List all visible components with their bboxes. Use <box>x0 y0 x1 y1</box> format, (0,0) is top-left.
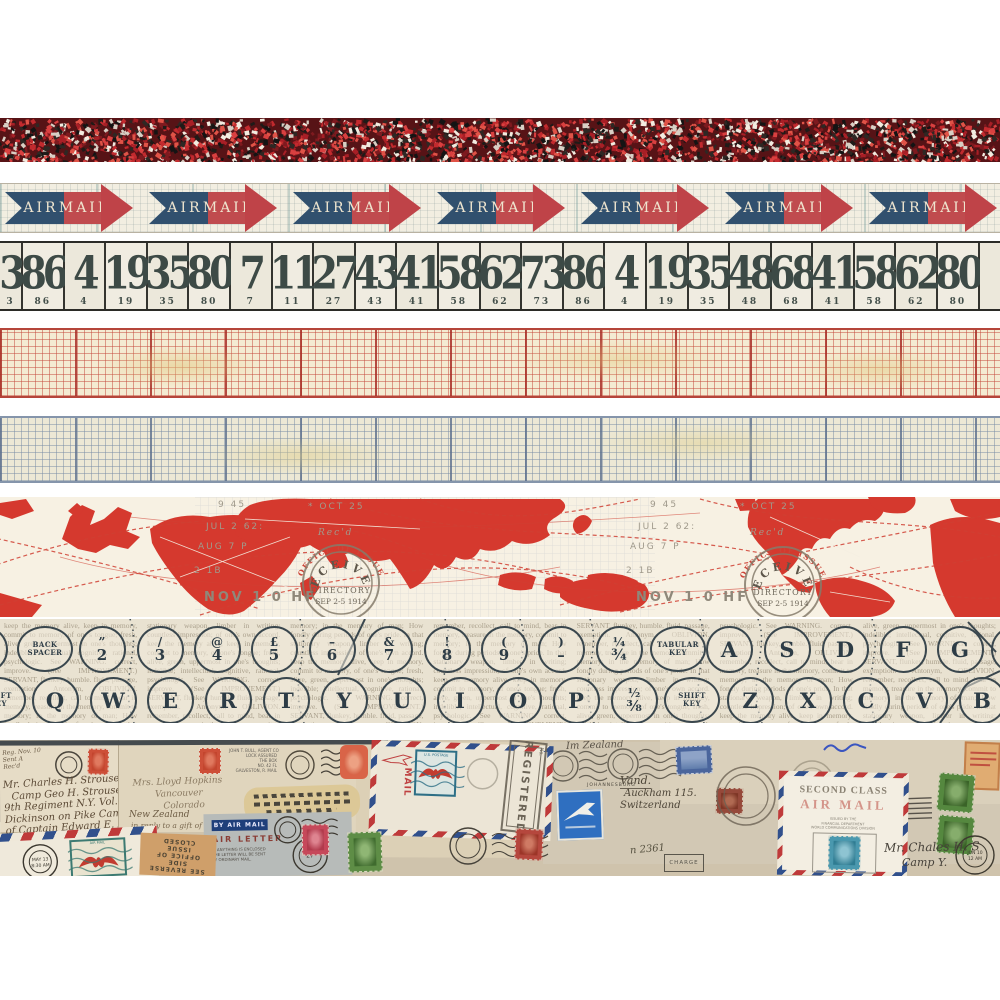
postmark-text: JUL 2 62: <box>637 522 696 532</box>
glitter-tape-strip <box>0 118 1000 162</box>
ticket-number-large: 62 <box>478 246 523 299</box>
envelope-left: Reg. Nov. 10Sent ARec'd Mr. Charles H. S… <box>0 741 122 834</box>
ticket-number-large: 86 <box>20 246 65 299</box>
ticket-number-large: 73 <box>519 246 564 299</box>
ticket-number-cell: 1111 <box>273 243 315 309</box>
typewriter-key-back: BACKSPACER <box>17 626 73 672</box>
ticket-number-cell: 5858 <box>439 243 481 309</box>
typewriter-key-Z: Z <box>727 677 774 724</box>
teal-cancel-waves <box>410 755 465 797</box>
ticket-number-small: 19 <box>647 297 687 307</box>
typewriter-key-–: )– <box>538 626 585 673</box>
typewriter-key-P: P <box>553 677 600 724</box>
ticket-number-small: 3 <box>0 297 21 307</box>
airmail-envelope-corner: MAY 13 8:30 AM AIR MAIL <box>0 826 159 876</box>
red-overprint-line <box>970 758 996 761</box>
postmark-text: Rec'd <box>317 528 353 538</box>
registered-stamp-box: REGISTERED No. <box>500 740 547 835</box>
handwritten-newzealand: New Zealand <box>129 810 190 820</box>
postmark-text: JUL 2 62: <box>205 522 264 532</box>
typewriter-key-E: E <box>147 677 194 724</box>
ticket-number-small: 4 <box>605 297 645 307</box>
ticket-number-cell: 2727 <box>314 243 356 309</box>
ticket-number-small: 80 <box>938 297 978 307</box>
ticket-number-cell: 3535 <box>148 243 190 309</box>
ticket-number-large: 41 <box>395 246 440 299</box>
band-part: MAIL <box>64 192 102 224</box>
ticket-number-cell: 4343 <box>356 243 398 309</box>
world-map-tape-strip: 9 45* OCT 25JUL 2 62:AUG 7 PRec'd2 1BNOV… <box>0 497 1000 617</box>
typewriter-key-I: I <box>437 677 484 724</box>
ticket-number-large: 62 <box>894 246 939 299</box>
ticket-number-large: 27 <box>312 246 357 299</box>
typewriter-key-F: F <box>880 626 927 673</box>
typewriter-key-Y: Y <box>321 677 368 724</box>
ticket-number-cell: 7373 <box>522 243 564 309</box>
svg-text:DIRECTORY: DIRECTORY <box>311 586 371 595</box>
red-graph-tape-strip <box>0 328 1000 398</box>
ticket-number-small: 7 <box>231 297 271 307</box>
small-print: ISSUED BY THE FINANCIAL DEPARTMENT WORLD… <box>783 816 903 832</box>
band-part: MAIL <box>784 192 822 224</box>
by-air-mail-label: BY AIR MAIL <box>212 819 268 831</box>
ticket-number-large: 58 <box>852 246 897 299</box>
blue-graph-tape-strip <box>0 416 1000 483</box>
svg-text:SEP 2-5 1914: SEP 2-5 1914 <box>315 597 367 606</box>
typewriter-key-Q: Q <box>32 677 79 724</box>
typewriter-key-2: ”2 <box>79 626 126 673</box>
air-mail-arrow: AIRMAIL <box>293 184 421 232</box>
typewriter-key-¾: ¼¾ <box>596 626 643 673</box>
typed-corner-block: JOHN T. BULL, AGENT COLOCK ASSURED THE B… <box>229 748 277 773</box>
air-letter-envelope: BY AIR MAIL AIR LETTER IF ANYTHING IS EN… <box>203 812 352 876</box>
air-mail-arrow: AIRMAIL <box>5 184 133 232</box>
ticket-number-large: 35 <box>145 246 190 299</box>
svg-text:8:30 AM: 8:30 AM <box>31 862 50 869</box>
typewriter-key-V: V <box>901 677 948 724</box>
blue-scene-stamp <box>675 745 712 775</box>
postmark-text: AUG 7 P <box>198 542 249 552</box>
air-mail-arrow: AIRMAIL <box>437 184 565 232</box>
ticket-number-cell: 44 <box>605 243 647 309</box>
air-letter-notes: IF ANYTHING IS ENCLOSED THE LETTER WILL … <box>212 846 266 862</box>
keys-layer: BACKSPACER”2/3@4£5–6&7!8(9)–¼¾TABULARKEY… <box>0 619 1000 723</box>
typewriter-key-R: R <box>205 677 252 724</box>
band-part: MAIL <box>640 192 678 224</box>
stamp-oval <box>344 749 364 775</box>
ticket-number-large: 11 <box>270 246 315 299</box>
postmark-ring-2 <box>282 748 318 784</box>
typewriter-key-S: S <box>764 626 811 673</box>
ticket-number-large: 19 <box>104 246 149 299</box>
ticket-number-cell: 4141 <box>397 243 439 309</box>
large-double-ring-postmark <box>714 764 778 828</box>
stamp-oval <box>833 841 855 865</box>
ticket-number-cell: 6262 <box>896 243 938 309</box>
postmark-text: 2 1B <box>194 566 223 576</box>
ticket-number-small: 86 <box>23 297 63 307</box>
ticket-number-cell: 6262 <box>481 243 523 309</box>
head-part <box>965 184 997 232</box>
fort-washington-postmark: MAY 13 8:30 AM <box>17 841 63 876</box>
confetti-speckles <box>0 118 1000 162</box>
typewriter-key-partial <box>0 626 8 673</box>
blue-portrait-stamp <box>828 836 861 871</box>
ticket-number-large: 86 <box>561 246 606 299</box>
postal-collage-tape-strip: Reg. Nov. 10Sent ARec'd Mr. Charles H. S… <box>0 740 1000 876</box>
ticket-number-small: 62 <box>896 297 936 307</box>
svg-text:DIRECTORY: DIRECTORY <box>753 588 813 597</box>
ticket-number-cell: 8080 <box>189 243 231 309</box>
typewriter-key-shift: SHIFTKEY <box>0 677 26 723</box>
typewriter-key-A: A <box>706 626 753 673</box>
air-mail-text: AIR MAIL <box>783 796 903 815</box>
typewriter-key-7: &7 <box>366 626 413 673</box>
postmark-text: Rec'd <box>749 528 785 538</box>
ticket-number-large: 43 <box>353 246 398 299</box>
corner-notes: Reg. Nov. 10Sent ARec'd <box>2 747 42 771</box>
typewriter-key-O: O <box>495 677 542 724</box>
ticket-number-large: 48 <box>727 246 772 299</box>
handwriting-vand: Vand. <box>620 774 651 789</box>
handwriting-corner-2: Camp Y. <box>902 856 947 869</box>
ticket-number-cell: 6868 <box>772 243 814 309</box>
handwriting-top-right: Im Zealand <box>566 740 624 752</box>
typewriter-key-9: (9 <box>481 626 528 673</box>
typewriter-key-X: X <box>785 677 832 724</box>
ticket-number-large: 80 <box>935 246 980 299</box>
handwriting-corner-1: Mr. Chales H. S <box>884 839 980 855</box>
ticket-number-large: 3 <box>0 246 22 299</box>
postmark-text: 9 45 <box>218 500 246 510</box>
green-stamp <box>936 772 975 813</box>
head-part <box>245 184 277 232</box>
telegram-text-row <box>254 799 350 806</box>
us-airmail-eagle-stamp-2: AIR MAIL <box>69 837 127 876</box>
svg-text:SEP 2-5 1914: SEP 2-5 1914 <box>757 599 809 608</box>
ticket-number-small: 43 <box>356 297 396 307</box>
ticket-number-large: 4 <box>73 246 95 299</box>
ticket-number-small: 58 <box>439 297 479 307</box>
ticket-number-cell <box>980 243 1000 309</box>
ticket-number-cell: 1919 <box>106 243 148 309</box>
typewriter-key-8: !8 <box>424 626 471 673</box>
postmark-text: 9 45 <box>650 500 678 510</box>
typewriter-key-U: U <box>379 677 426 724</box>
telegram-text-row <box>254 791 350 798</box>
ticket-number-cell: 4141 <box>813 243 855 309</box>
stamp-printed-box <box>812 832 877 873</box>
ticket-number-small: 80 <box>189 297 229 307</box>
postmark-text: NOV 1 0 HF <box>636 590 749 605</box>
ticket-number-cell: 77 <box>231 243 273 309</box>
stamp-oval <box>943 779 969 807</box>
ticket-number-small: 68 <box>772 297 812 307</box>
stamp-oval <box>354 838 377 867</box>
red-overprint-line <box>970 764 990 767</box>
red-washington-stamp-2 <box>199 748 221 774</box>
air-mail-arrow: AIRMAIL <box>149 184 277 232</box>
red-king-stamp <box>302 824 330 855</box>
head-part <box>821 184 853 232</box>
ticket-number-large: 58 <box>436 246 481 299</box>
ticket-number-large: 68 <box>769 246 814 299</box>
ticket-number-small: 35 <box>689 297 729 307</box>
ticket-number-large: 19 <box>644 246 689 299</box>
typewriter-key-4: @4 <box>194 626 241 673</box>
ticket-number-small: 73 <box>522 297 562 307</box>
ticket-number-cell: 8686 <box>23 243 65 309</box>
typewriter-key-W: W <box>90 677 137 724</box>
handwriting-auckham: Auckham 115. <box>624 788 697 799</box>
embossed-orange-stamp <box>340 745 368 779</box>
ticket-number-cell: 44 <box>65 243 107 309</box>
envelope-face: SECOND CLASS AIR MAIL ISSUED BY THE FINA… <box>782 776 904 872</box>
registered-stamp-area: REGISTERED No. <box>478 744 570 830</box>
ticket-number-large: 41 <box>811 246 856 299</box>
typewriter-key-D: D <box>822 626 869 673</box>
ticket-number-small: 4 <box>65 297 105 307</box>
head-part <box>533 184 565 232</box>
postmark-text: AUG 7 P <box>630 542 681 552</box>
ticket-number-cell: 5858 <box>855 243 897 309</box>
band-part: MAIL <box>928 192 966 224</box>
washi-tape-product-image: AIRMAILAIRMAILAIRMAILAIRMAILAIRMAILAIRMA… <box>0 0 1000 1000</box>
stamp-oval <box>519 834 538 856</box>
upside-down-stamp-text: SEE REVERSE SIDE OFFICE OF ISSUE CLOSED <box>143 835 214 876</box>
svg-text:MAY 13: MAY 13 <box>32 856 49 863</box>
band-part: MAIL <box>496 192 534 224</box>
air-mail-arrow: AIRMAIL <box>581 184 709 232</box>
stamp-scene <box>681 750 708 769</box>
typewriter-key-tabular: TABULARKEY <box>650 626 706 672</box>
ticket-number-large: 7 <box>240 246 262 299</box>
ticket-number-cell: 1919 <box>647 243 689 309</box>
ticket-number-small: 19 <box>106 297 146 307</box>
typewriter-key-⅜: ½⅜ <box>611 677 658 724</box>
charge-box: CHARGE <box>664 854 704 872</box>
ticket-number-small: 62 <box>481 297 521 307</box>
svg-text:12 AM: 12 AM <box>968 856 982 862</box>
ticket-number-large: 80 <box>187 246 232 299</box>
ticket-number-small: 48 <box>730 297 770 307</box>
air-mail-arrow: AIRMAIL <box>869 184 997 232</box>
band-part: MAIL <box>352 192 390 224</box>
handwritten-address-2: Mrs. Lloyd Hopkins Vancouver Colorado <box>132 774 223 813</box>
green-stamp <box>347 831 382 872</box>
typewriter-key-5: £5 <box>251 626 298 673</box>
typewriter-key-B: B <box>959 677 1000 724</box>
ticket-number-small: 58 <box>855 297 895 307</box>
postmark-text: NOV 1 0 HF <box>204 590 317 605</box>
typewriter-key-G: G <box>937 626 984 673</box>
ticket-number-large: 35 <box>686 246 731 299</box>
red-stamp-small <box>514 828 544 860</box>
ticket-number-cell: 8080 <box>938 243 980 309</box>
head-part <box>677 184 709 232</box>
us-airmail-eagle-stamp: U.S. POSTAGE <box>414 749 458 796</box>
typewriter-keys-tape-strip: keep the memory alive, keep in memory, c… <box>0 619 1000 723</box>
teal-cancel-waves <box>67 841 133 876</box>
world-map-art: 9 45* OCT 25JUL 2 62:AUG 7 PRec'd2 1BNOV… <box>0 497 1000 617</box>
typewriter-key-3: /3 <box>137 626 184 673</box>
stamp-oval <box>203 752 217 770</box>
stamp-oval <box>92 753 105 771</box>
ticket-number-cell: 3535 <box>689 243 731 309</box>
postmark-text: * OCT 25 <box>740 502 797 512</box>
postmark-text: * OCT 25 <box>308 502 365 512</box>
ticket-number-small: 35 <box>148 297 188 307</box>
typewriter-key-shift: SHIFTKEY <box>664 677 720 723</box>
air-mail-arrow: AIRMAIL <box>725 184 853 232</box>
ticket-number-small: 27 <box>314 297 354 307</box>
head-part <box>101 184 133 232</box>
ticket-number-small: 11 <box>273 297 313 307</box>
band-part: MAIL <box>208 192 246 224</box>
typewriter-key-6: –6 <box>309 626 356 673</box>
ticket-number-cell: 4848 <box>730 243 772 309</box>
ticket-number-cell: 8686 <box>564 243 606 309</box>
red-washington-stamp <box>87 748 109 775</box>
stamped-tan-paper: SEE REVERSE SIDE OFFICE OF ISSUE CLOSED <box>139 833 216 876</box>
typewriter-key-partial <box>991 626 1000 673</box>
ticket-number-small: 41 <box>397 297 437 307</box>
ticket-number-small: 41 <box>813 297 853 307</box>
typewriter-key-T: T <box>263 677 310 724</box>
air-mail-arrows-tape-strip: AIRMAILAIRMAILAIRMAILAIRMAILAIRMAILAIRMA… <box>0 183 1000 233</box>
typewriter-key-C: C <box>843 677 890 724</box>
head-part <box>389 184 421 232</box>
ticket-number-small: 86 <box>564 297 604 307</box>
red-overprint-line <box>970 752 996 755</box>
handwriting-switzerland: Switzerland <box>620 800 681 811</box>
postmark-text: 2 1B <box>626 566 655 576</box>
ticket-numbers-tape-strip: 3386864419193535808077111127274343414158… <box>0 241 1000 311</box>
ticket-number-large: 4 <box>614 246 636 299</box>
blue-scribble <box>822 742 868 756</box>
stamp-oval <box>307 829 324 850</box>
second-class-airmail-envelope: SECOND CLASS AIR MAIL ISSUED BY THE FINA… <box>777 771 909 876</box>
